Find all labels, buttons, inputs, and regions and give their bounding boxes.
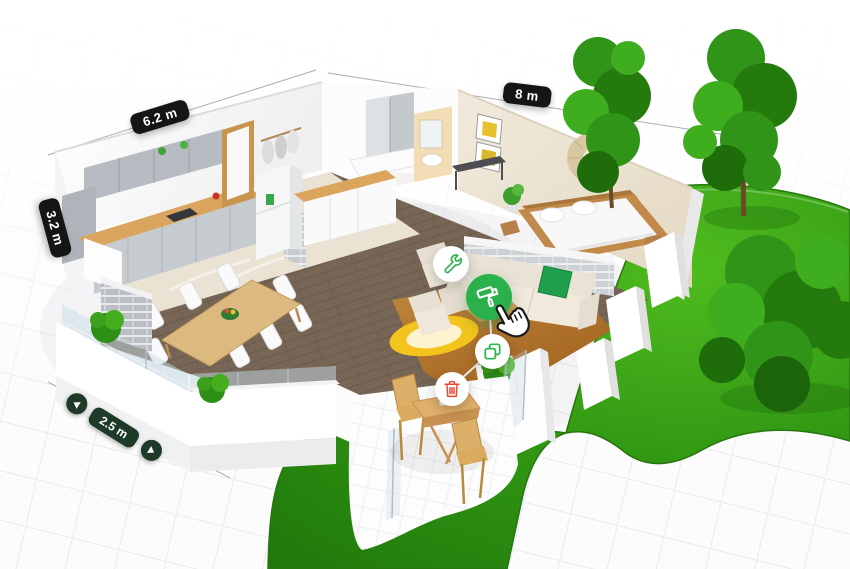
green-pillow [538,266,572,298]
arrow-left-icon [72,399,81,409]
door [222,120,254,208]
plant-on-cabinet [180,141,188,149]
paint-roller-icon [476,284,502,310]
floor-planner-canvas[interactable]: 6.2 m 8 m 3.2 m 2.5 m [0,0,850,569]
floor-plan-scene [0,0,850,569]
plant-on-cabinet [158,147,166,155]
fridge [256,164,302,260]
adjust-tool-button[interactable] [433,246,469,282]
trash-icon [441,378,463,400]
sink-vanity [414,106,452,182]
duplicate-tool-button[interactable] [475,334,510,369]
fruit-bowl [221,308,239,320]
arrow-right-icon [147,446,156,456]
kettle [213,193,220,200]
copy-icon [481,340,504,363]
paint-tool-button[interactable] [466,274,512,320]
delete-tool-button[interactable] [435,372,469,406]
wrench-icon [439,252,463,276]
tree-shadow [704,206,800,230]
